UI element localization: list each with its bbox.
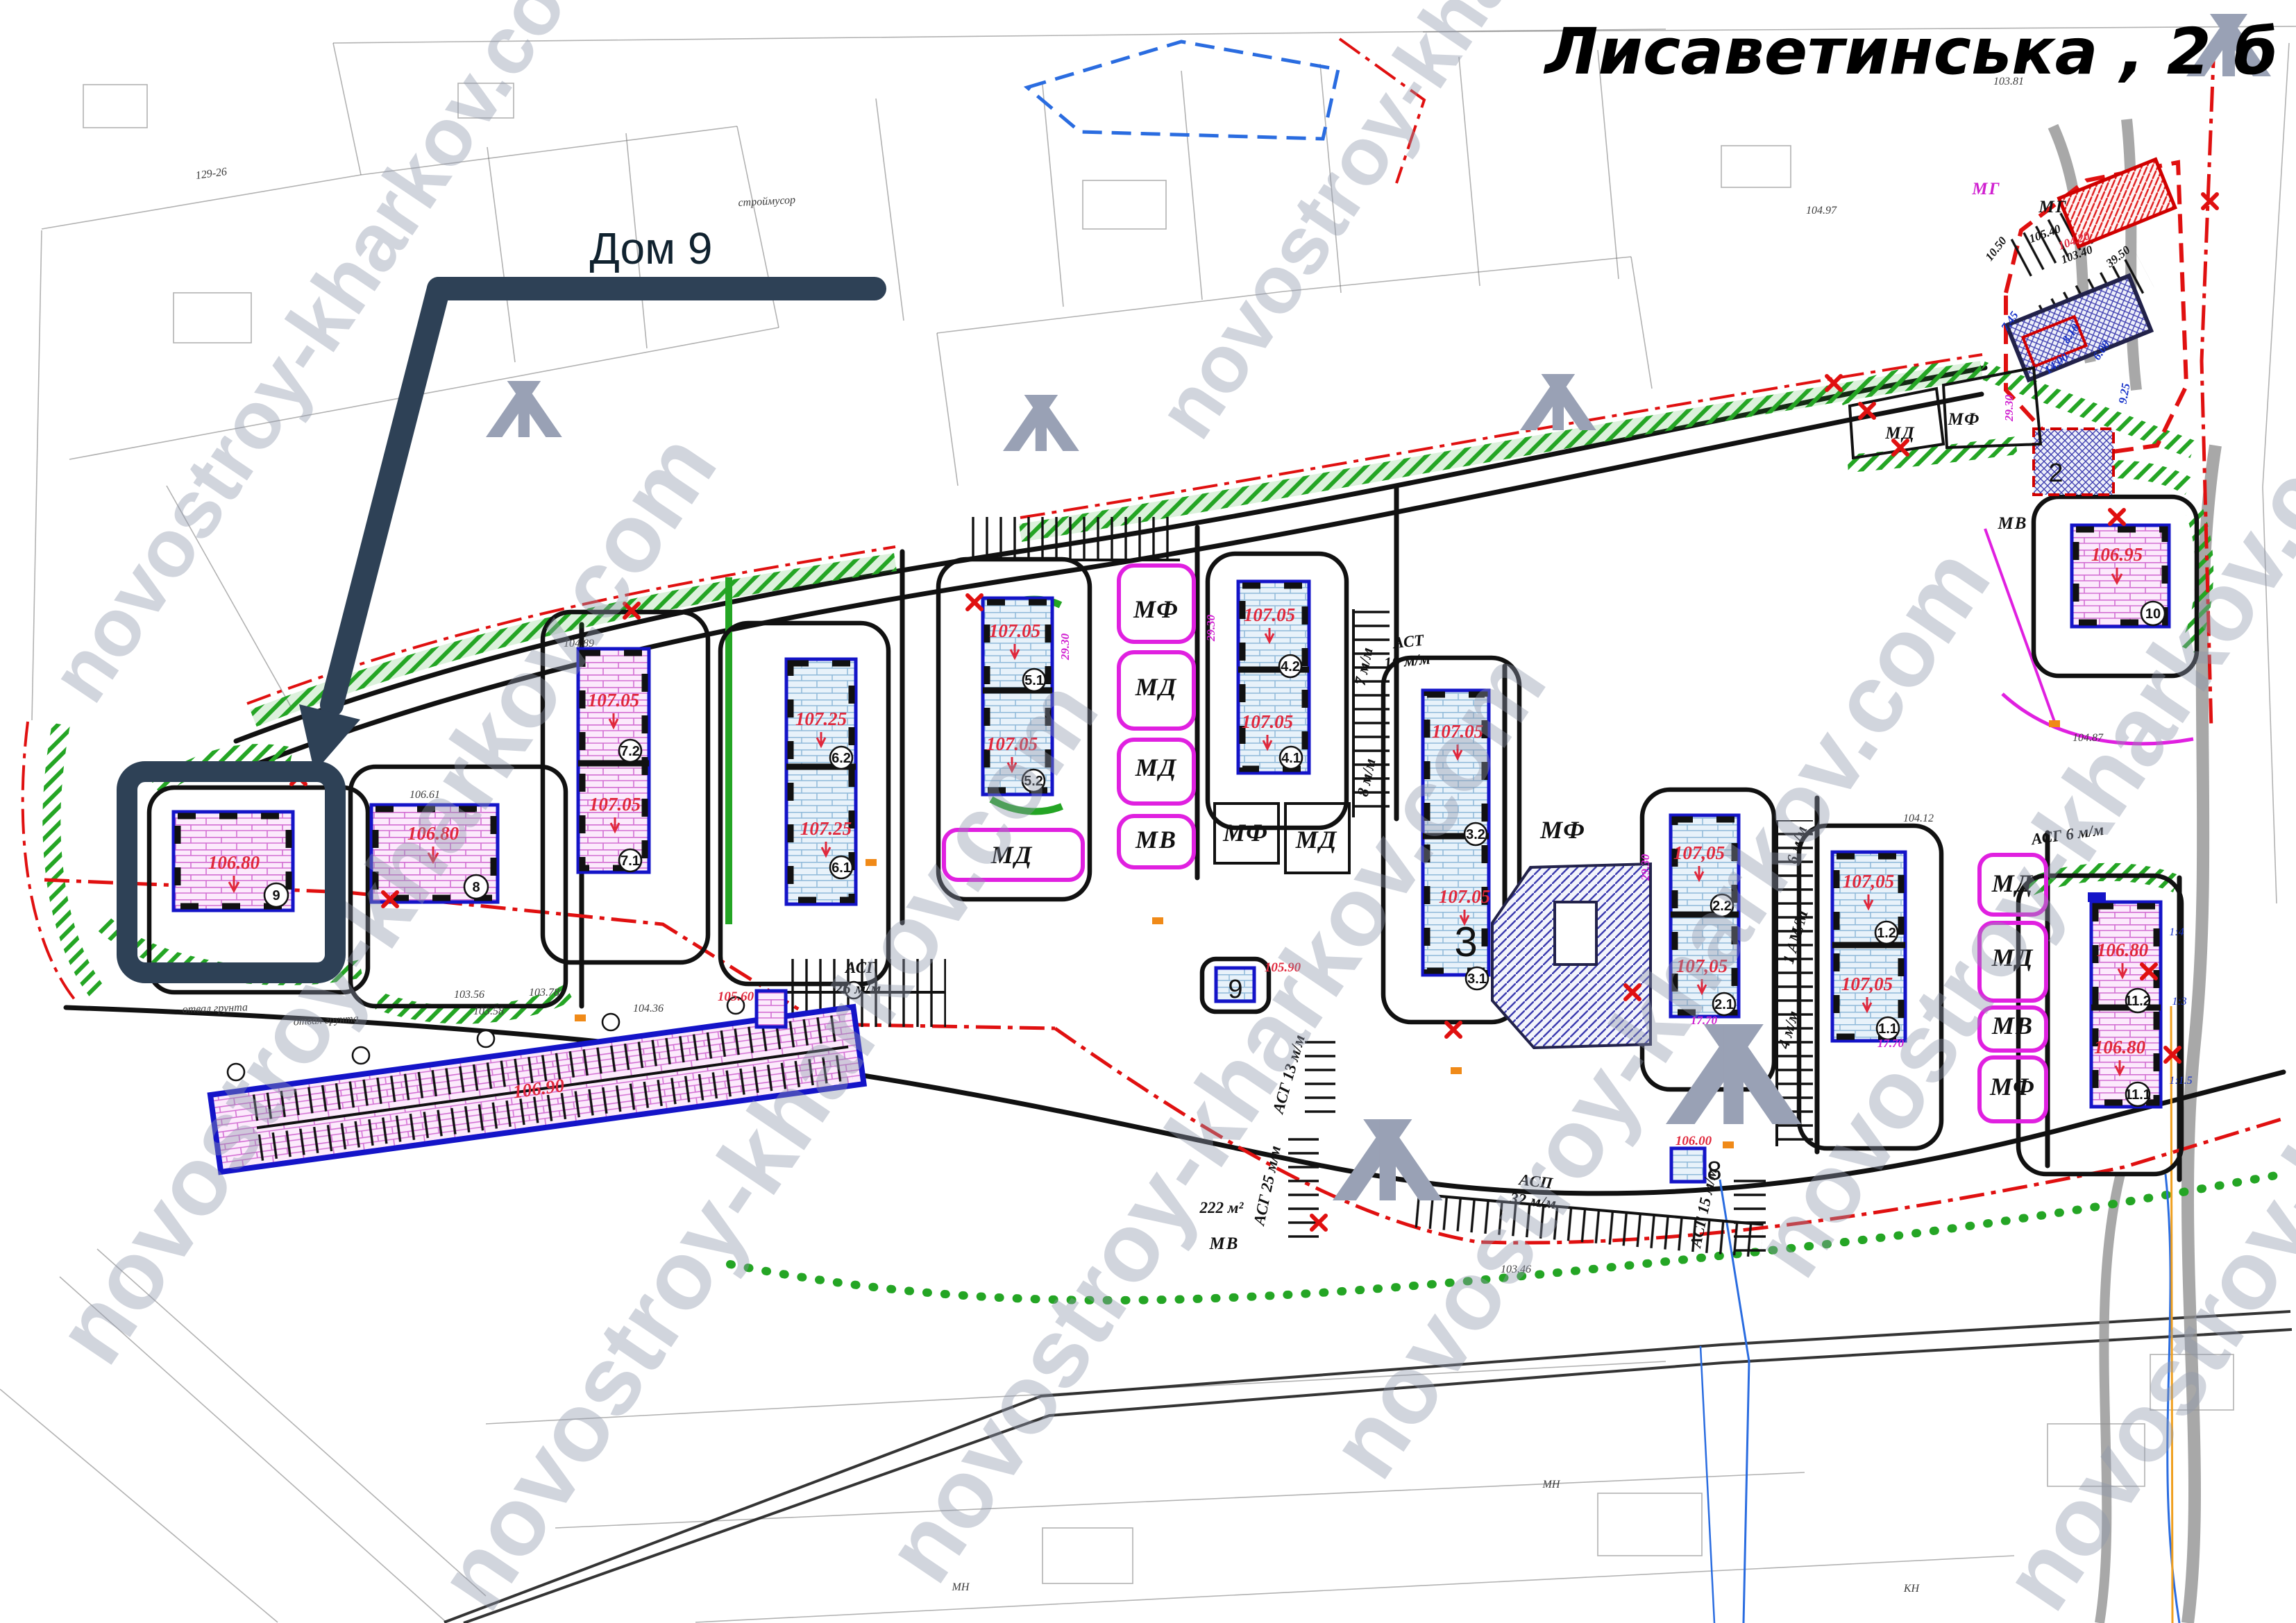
- svg-text:11.2: 11.2: [2125, 994, 2151, 1009]
- svg-text:106.00: 106.00: [1675, 1134, 1712, 1148]
- zone-label: МВ: [1209, 1234, 1240, 1253]
- building-9: 106.80 9: [174, 812, 293, 910]
- svg-text:отвал грунта: отвал грунта: [182, 1001, 248, 1015]
- building-11: 106.80 11.2 106.80 11.1: [2088, 892, 2161, 1107]
- svg-text:107.05: 107.05: [989, 620, 1040, 641]
- building-6: 107.25 6.2 107.25 6.1: [786, 659, 856, 904]
- svg-text:29.30: 29.30: [2002, 394, 2016, 422]
- building-4: 107.05 4.2 107.05 4.1: [1238, 581, 1309, 773]
- svg-text:107,05: 107,05: [1841, 974, 1893, 994]
- svg-text:10.50: 10.50: [1982, 234, 2009, 263]
- svg-text:107.05: 107.05: [1244, 604, 1295, 625]
- zone-label: МД: [1135, 754, 1178, 781]
- svg-text:107,05: 107,05: [1843, 871, 1894, 892]
- svg-text:7.2: 7.2: [621, 744, 640, 759]
- watermark-logo: [1520, 374, 1596, 430]
- svg-text:103.58: 103.58: [473, 1005, 504, 1017]
- svg-text:1:1.5: 1:1.5: [2169, 1075, 2192, 1087]
- zone-label: МФ: [1133, 595, 1179, 623]
- svg-text:107.25: 107.25: [800, 818, 852, 839]
- svg-text:129-26: 129-26: [195, 166, 228, 182]
- svg-text:АСТ: АСТ: [1391, 631, 1425, 652]
- svg-text:29.30: 29.30: [1058, 633, 1072, 661]
- svg-text:6.1: 6.1: [832, 860, 851, 876]
- svg-text:106.80: 106.80: [208, 852, 260, 873]
- svg-text:6.2: 6.2: [832, 751, 851, 766]
- structure-2-label: 2: [2048, 459, 2063, 488]
- svg-text:4.2: 4.2: [1281, 659, 1300, 674]
- zone-label: МФ: [1948, 410, 1981, 429]
- structure-2: 2: [2034, 429, 2113, 495]
- zone-label: МФ: [1222, 819, 1269, 847]
- svg-text:103.56: 103.56: [454, 989, 484, 1001]
- svg-text:105.60: 105.60: [718, 989, 754, 1004]
- zone-label: МФ: [1989, 1073, 2036, 1101]
- svg-text:1:3: 1:3: [2172, 996, 2186, 1008]
- svg-text:106.80: 106.80: [2094, 1037, 2146, 1057]
- watermark-logo: [486, 381, 562, 437]
- svg-text:103.78: 103.78: [529, 987, 559, 999]
- zone-label: МД: [1884, 424, 1915, 443]
- svg-text:104.36: 104.36: [633, 1003, 664, 1014]
- svg-text:строймусор: строймусор: [738, 194, 795, 209]
- svg-text:29.30: 29.30: [1204, 614, 1217, 642]
- callout-label: Дом 9: [589, 223, 712, 273]
- svg-text:107.05: 107.05: [588, 690, 639, 711]
- zone-label: МВ: [1998, 514, 2028, 533]
- watermark-logo: [1003, 395, 1079, 451]
- zone-label: МД: [1135, 673, 1178, 701]
- svg-text:9.25: 9.25: [2116, 382, 2133, 405]
- zone-label: МГ: [1971, 180, 2000, 198]
- svg-text:107.05: 107.05: [1242, 711, 1293, 732]
- svg-text:9: 9: [272, 888, 280, 903]
- svg-text:4.1: 4.1: [1281, 751, 1301, 766]
- svg-text:8: 8: [472, 880, 480, 895]
- svg-text:107.05: 107.05: [589, 794, 641, 815]
- svg-text:3: 3: [1454, 919, 1477, 965]
- svg-text:104.12: 104.12: [1903, 813, 1934, 824]
- svg-text:КН: КН: [1903, 1583, 1921, 1595]
- svg-text:104.97: 104.97: [1806, 205, 1837, 216]
- svg-text:29.30: 29.30: [1639, 853, 1652, 881]
- watermark-logo: [1333, 1119, 1443, 1200]
- zone-label: МФ: [1539, 816, 1586, 844]
- svg-text:7.1: 7.1: [621, 853, 640, 869]
- site-plan-map: 2 106.80 9 106.80 8 107.05 7.2 10: [0, 0, 2296, 1623]
- svg-text:10 м/м: 10 м/м: [1383, 650, 1431, 672]
- svg-text:106.95: 106.95: [2091, 544, 2143, 565]
- svg-text:3.1: 3.1: [1467, 971, 1487, 987]
- page-title: Лисаветинська , 2 б: [1543, 15, 2278, 89]
- svg-text:МН: МН: [1542, 1479, 1561, 1490]
- svg-text:1:4: 1:4: [2169, 926, 2184, 938]
- svg-text:106.80: 106.80: [2097, 940, 2149, 960]
- zone-label: МГ: [2038, 198, 2067, 216]
- zone-label: МВ: [1135, 826, 1177, 853]
- svg-text:107.25: 107.25: [795, 708, 847, 729]
- svg-text:11.1: 11.1: [2125, 1087, 2151, 1103]
- svg-text:1.2: 1.2: [1877, 926, 1896, 941]
- svg-text:107.05: 107.05: [1439, 886, 1490, 907]
